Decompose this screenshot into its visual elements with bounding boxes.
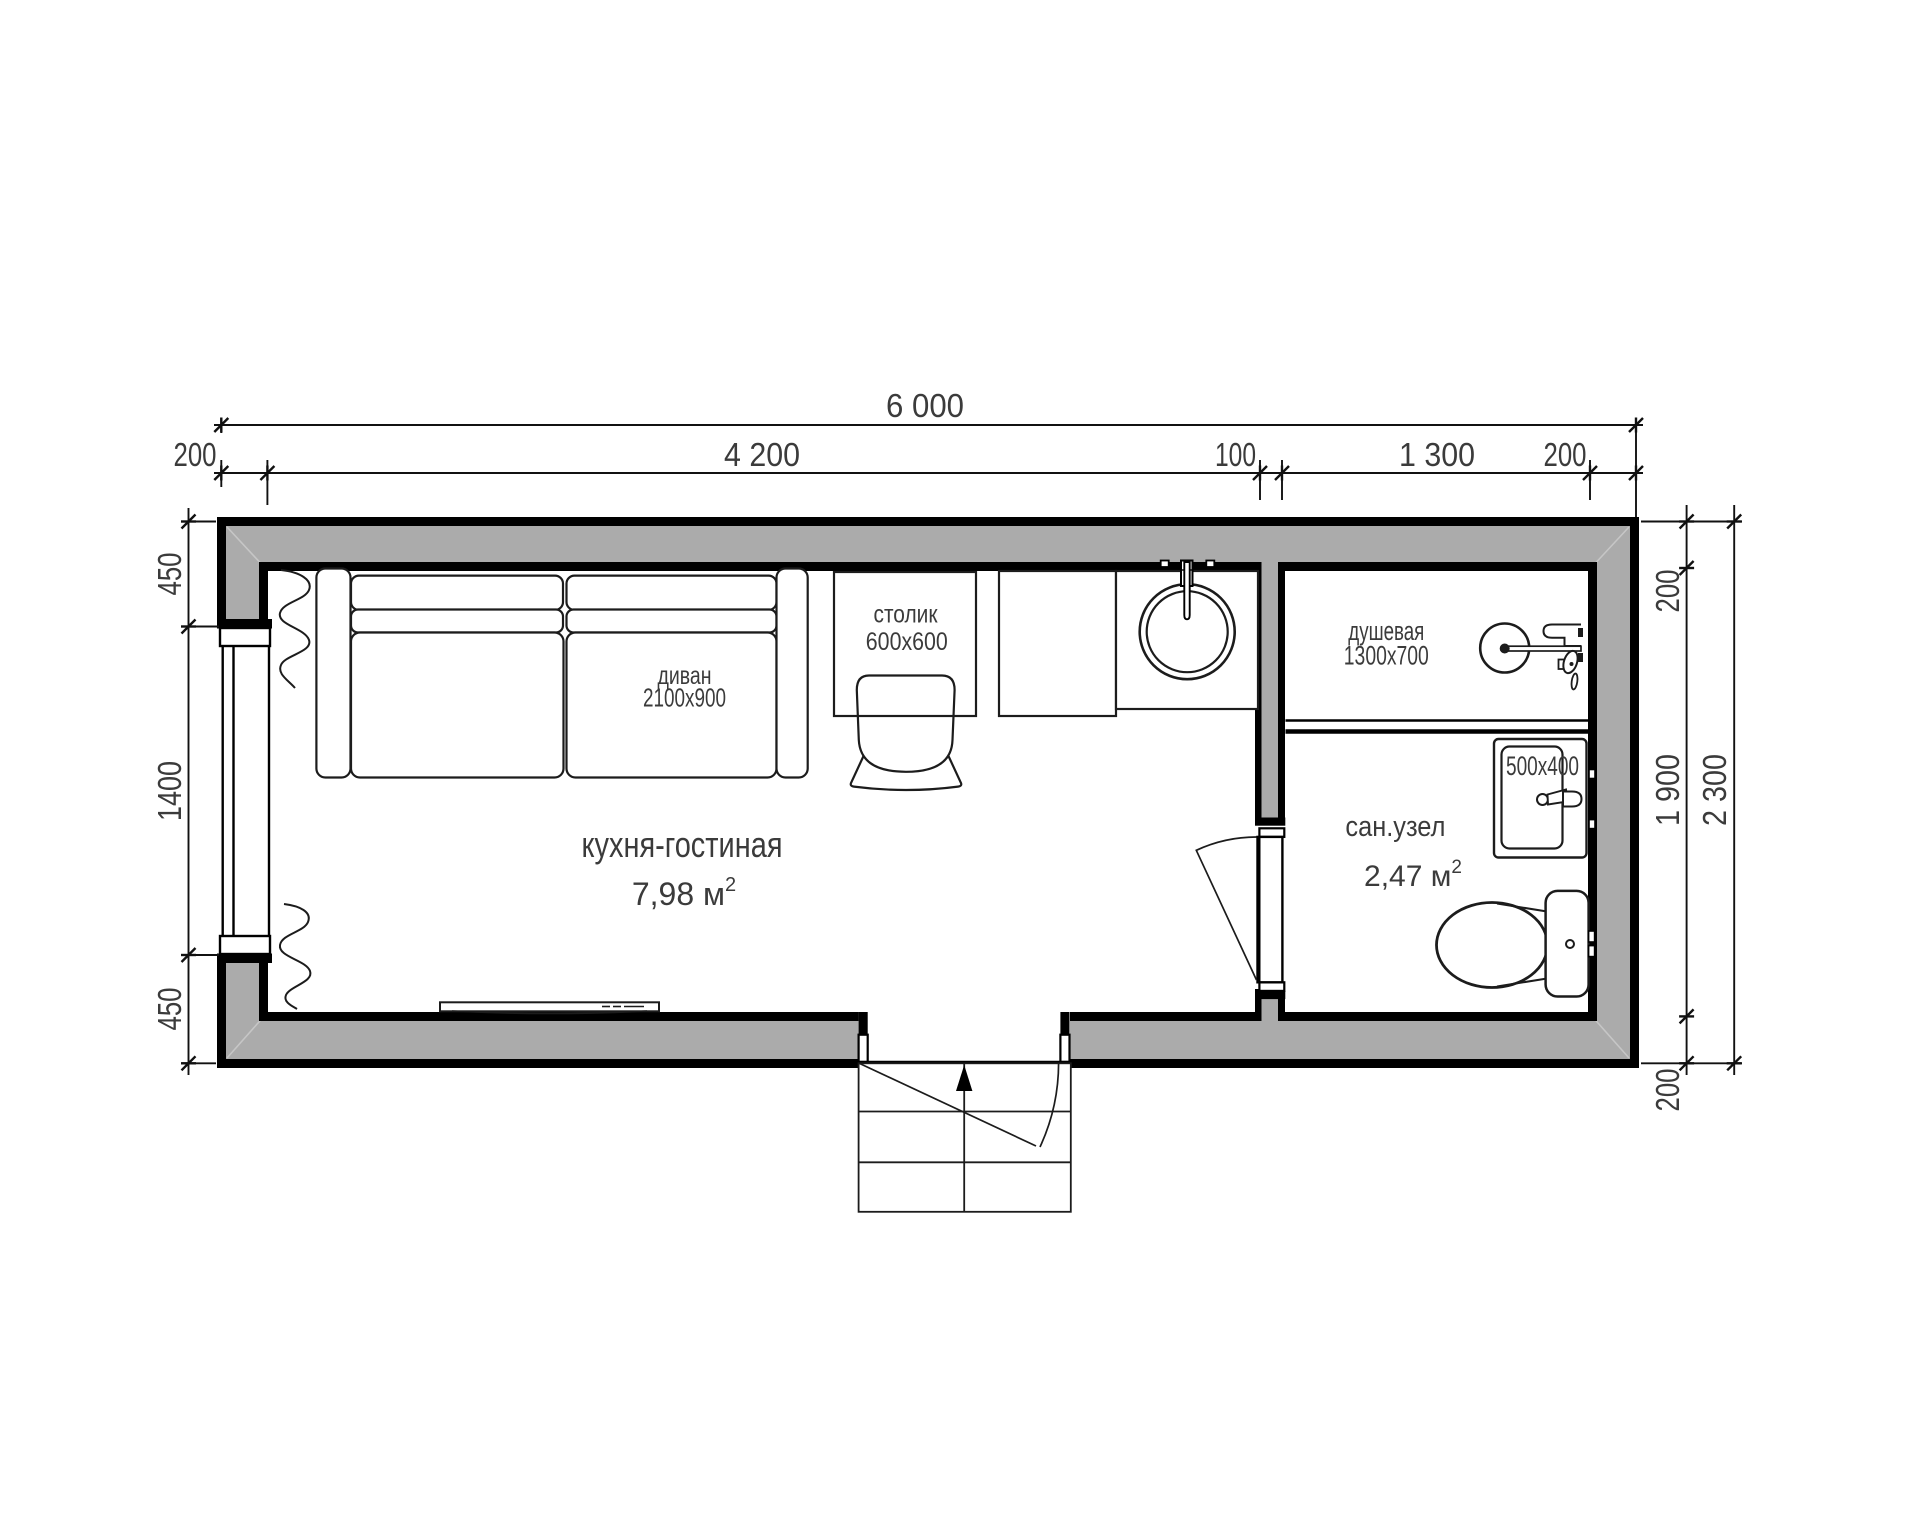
svg-text:500х400: 500х400 bbox=[1506, 751, 1579, 781]
svg-text:1 900: 1 900 bbox=[1649, 754, 1686, 826]
svg-text:2100х900: 2100х900 bbox=[643, 683, 726, 713]
svg-text:4 200: 4 200 bbox=[724, 436, 800, 473]
svg-text:1 300: 1 300 bbox=[1399, 436, 1475, 473]
svg-text:1400: 1400 bbox=[151, 761, 188, 821]
svg-text:200: 200 bbox=[174, 436, 217, 473]
svg-text:2,47 м2: 2,47 м2 bbox=[1364, 857, 1462, 893]
svg-text:7,98 м2: 7,98 м2 bbox=[632, 874, 736, 912]
svg-text:столик: столик bbox=[874, 601, 939, 629]
svg-text:кухня-гостиная: кухня-гостиная bbox=[582, 824, 783, 865]
svg-text:200: 200 bbox=[1649, 1069, 1686, 1112]
svg-text:1300х700: 1300х700 bbox=[1344, 641, 1429, 671]
svg-text:6 000: 6 000 bbox=[886, 387, 964, 424]
svg-text:2 300: 2 300 bbox=[1696, 754, 1733, 826]
svg-text:сан.узел: сан.узел bbox=[1345, 811, 1445, 843]
svg-text:450: 450 bbox=[151, 988, 188, 1031]
svg-text:600х600: 600х600 bbox=[866, 628, 948, 656]
svg-text:200: 200 bbox=[1544, 436, 1587, 473]
svg-text:450: 450 bbox=[151, 553, 188, 596]
svg-text:200: 200 bbox=[1649, 570, 1686, 613]
svg-text:100: 100 bbox=[1215, 436, 1256, 473]
